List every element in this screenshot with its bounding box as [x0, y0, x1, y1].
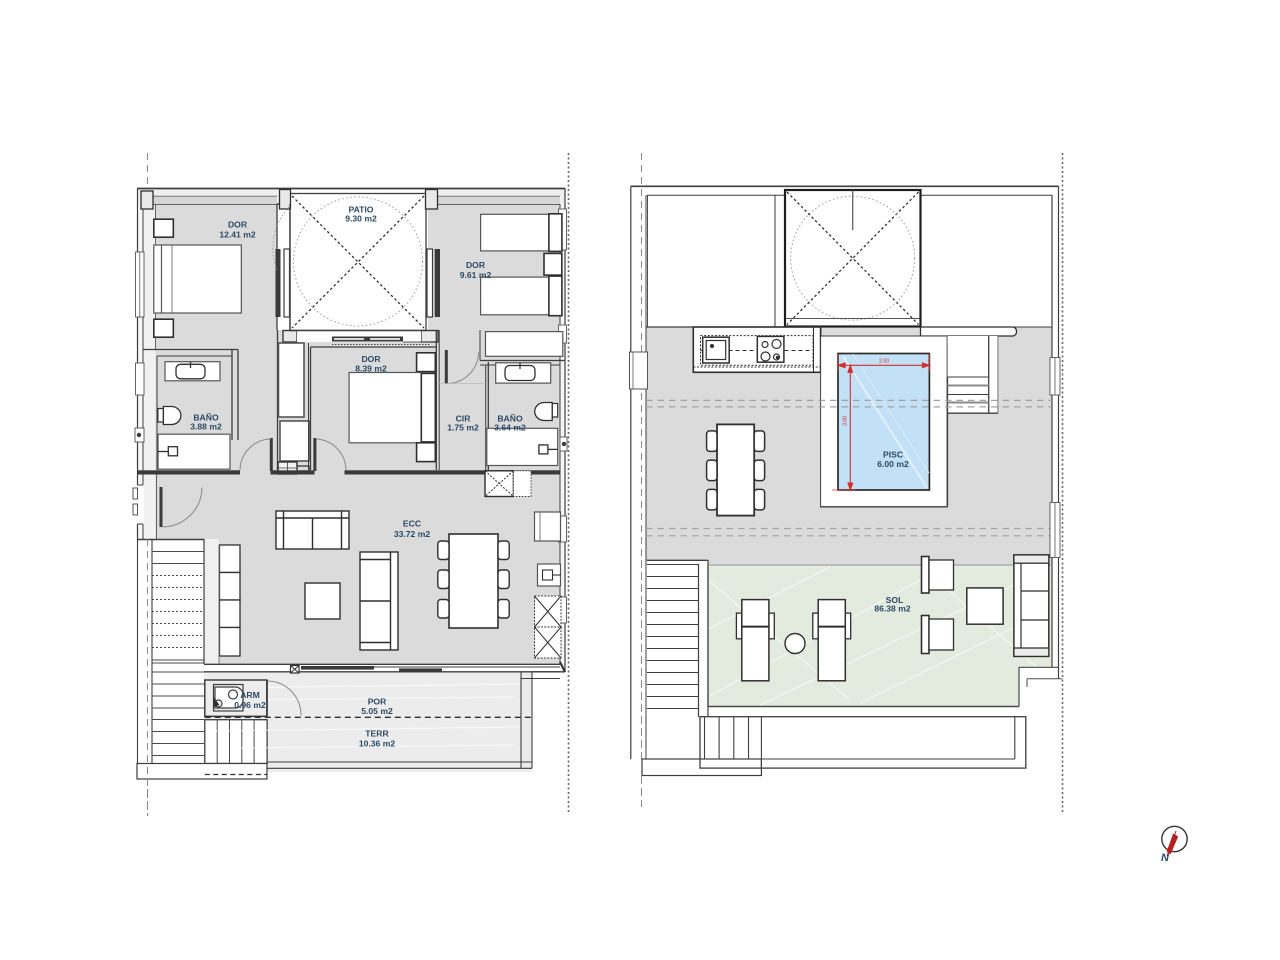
svg-text:5.05 m2: 5.05 m2 — [361, 706, 393, 716]
svg-text:ARM: ARM — [240, 690, 260, 700]
svg-text:POR: POR — [368, 697, 387, 707]
svg-text:2.00: 2.00 — [879, 359, 889, 365]
svg-text:3.64 m2: 3.64 m2 — [494, 423, 526, 433]
svg-text:PISC: PISC — [883, 450, 903, 460]
svg-text:3.00: 3.00 — [843, 416, 849, 426]
svg-text:ECC: ECC — [403, 519, 421, 529]
svg-text:0.96 m2: 0.96 m2 — [234, 700, 266, 710]
svg-text:3.88 m2: 3.88 m2 — [190, 422, 222, 432]
svg-text:TERR: TERR — [365, 729, 389, 739]
svg-text:8.39 m2: 8.39 m2 — [355, 364, 387, 374]
svg-text:1.75 m2: 1.75 m2 — [447, 423, 479, 433]
svg-text:N: N — [1161, 852, 1170, 864]
svg-text:33.72 m2: 33.72 m2 — [394, 529, 431, 539]
svg-text:6.00 m2: 6.00 m2 — [877, 459, 909, 469]
svg-text:86.38 m2: 86.38 m2 — [874, 604, 911, 614]
svg-text:9.61 m2: 9.61 m2 — [460, 270, 492, 280]
svg-text:DOR: DOR — [466, 260, 486, 270]
svg-text:10.36 m2: 10.36 m2 — [359, 739, 396, 749]
svg-text:DOR: DOR — [361, 354, 381, 364]
svg-text:DOR: DOR — [228, 220, 248, 230]
svg-text:12.41 m2: 12.41 m2 — [219, 230, 256, 240]
svg-text:9.30 m2: 9.30 m2 — [345, 214, 377, 224]
